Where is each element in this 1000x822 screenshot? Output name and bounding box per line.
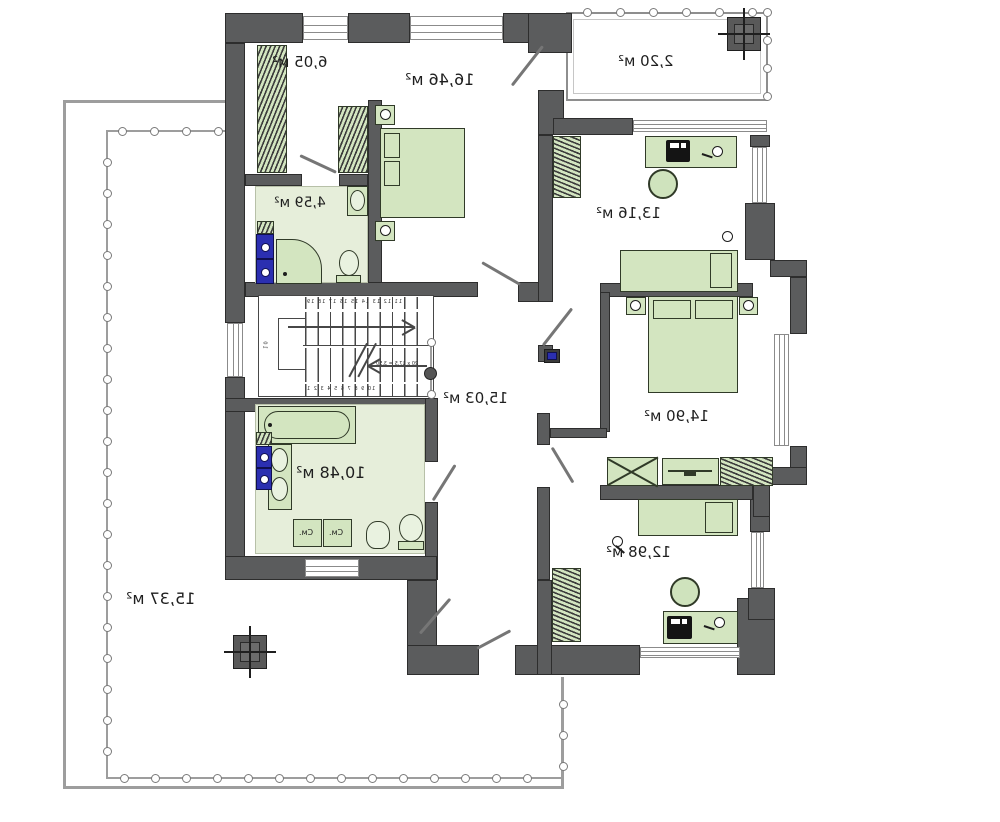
wall-segment [770, 260, 807, 277]
railing-post [368, 774, 377, 783]
bathtub-faucet [268, 423, 272, 427]
room-area-label: 6,05 м² [272, 55, 328, 70]
laundry-box-label: См. [299, 529, 313, 537]
room-area-label: 4,59 м² [274, 196, 326, 210]
stair-numbers-bottom: 10 9 8 7 6 5 4 3 2 1 [306, 387, 375, 392]
wall-segment [537, 413, 550, 445]
chair [670, 577, 700, 607]
floor-plan: 15,37 м² 2,20 м² [0, 0, 1000, 822]
door-leaf [481, 261, 521, 286]
railing-post [763, 92, 772, 101]
balcony-area-label: 2,20 м² [618, 54, 674, 69]
sink-basin [350, 190, 365, 211]
room-area-label: 16,46 м² [405, 72, 474, 88]
railing-post [103, 437, 112, 446]
wardrobe-unit [338, 106, 368, 173]
laundry-box-label: См. [329, 529, 343, 537]
radiator [553, 136, 581, 198]
railing-post [275, 774, 284, 783]
window [227, 323, 243, 377]
washing-machine [256, 446, 272, 468]
railing-post [103, 654, 112, 663]
railing-post [583, 8, 592, 17]
toilet-bowl [399, 514, 423, 542]
stair-arrow-up [288, 326, 413, 328]
terrace-edge [63, 100, 66, 788]
railing-post [103, 530, 112, 539]
railing-post [559, 700, 568, 709]
wall-segment [748, 588, 775, 620]
wall-segment [348, 13, 410, 43]
wall-segment [600, 292, 610, 432]
computer-icon [666, 140, 690, 162]
railing-post [182, 127, 191, 136]
bidet [366, 521, 390, 549]
room-area-label: 12,98 м² [606, 545, 671, 560]
railing-post [337, 774, 346, 783]
railing-post [103, 282, 112, 291]
toilet-bowl [339, 250, 359, 276]
railing-post [103, 561, 112, 570]
wall-segment [770, 467, 807, 485]
shelf-unit [257, 221, 274, 234]
column-axis-icon [249, 626, 251, 678]
door-leaf [299, 154, 337, 174]
bathtub-basin [264, 411, 350, 439]
computer-icon [667, 616, 692, 639]
wall-segment [550, 428, 607, 438]
window [640, 647, 740, 658]
door-leaf [542, 308, 573, 347]
wall-segment [528, 13, 572, 53]
lamp-icon [380, 225, 391, 236]
railing-post [103, 747, 112, 756]
wall-segment [753, 483, 770, 517]
radiator [552, 568, 581, 642]
railing-post [715, 8, 724, 17]
railing-post [103, 251, 112, 260]
railing-post [120, 774, 129, 783]
railing-post [214, 127, 223, 136]
lamp-icon [380, 109, 391, 120]
railing-post [649, 8, 658, 17]
railing-post [430, 774, 439, 783]
window [410, 16, 503, 40]
shelf-unit [256, 432, 272, 445]
wall-segment [339, 174, 368, 186]
railing-post [103, 189, 112, 198]
wall-segment [538, 135, 553, 302]
dressing-table-seat [684, 472, 696, 476]
electrical-box-face [547, 352, 557, 360]
terrace-edge [63, 100, 225, 103]
window-balcony [633, 120, 767, 132]
door-leaf [551, 447, 575, 484]
railing-post [150, 127, 159, 136]
column-axis-icon [743, 8, 745, 60]
wall-segment [790, 277, 807, 334]
railing-post [103, 375, 112, 384]
railing-post [427, 338, 436, 347]
wall-segment [537, 580, 552, 675]
railing-post [103, 499, 112, 508]
stair-numbers-top: 11 12 13 14 15 16 17 18 19 [306, 300, 402, 305]
stair-side-note: 10 [262, 340, 267, 348]
room-area-label: 15,03 м² [443, 391, 508, 406]
railing-post [763, 8, 772, 17]
wall-segment [225, 43, 245, 323]
terrace-area-label: 15,37 м² [126, 591, 195, 607]
lamp-icon [743, 300, 754, 311]
window [751, 532, 764, 588]
railing-post [748, 8, 757, 17]
sink-basin [271, 477, 288, 501]
lamp-icon [714, 617, 725, 628]
railing-post [103, 313, 112, 322]
railing-post [151, 774, 160, 783]
wall-segment [537, 487, 550, 580]
railing-post [103, 716, 112, 725]
railing-post [103, 406, 112, 415]
railing-post [244, 774, 253, 783]
window [303, 16, 348, 40]
railing-post [182, 774, 191, 783]
toilet-tank [398, 541, 424, 550]
sink-basin [271, 448, 288, 472]
railing-post [103, 344, 112, 353]
wall-segment [600, 485, 753, 500]
wall-segment [407, 580, 437, 647]
terrace-edge [63, 786, 564, 789]
wall-segment [503, 13, 530, 43]
door-leaf [432, 464, 457, 501]
railing-post [461, 774, 470, 783]
lamp-icon [712, 146, 723, 157]
railing-post [399, 774, 408, 783]
dryer [256, 259, 274, 284]
radiator [720, 457, 773, 486]
railing-post [103, 685, 112, 694]
wall-segment [745, 203, 775, 260]
wall-segment [515, 645, 640, 675]
railing-post [523, 774, 532, 783]
railing-post [103, 220, 112, 229]
window-bay [774, 334, 789, 446]
stair-newel-post [424, 367, 437, 380]
wall-segment [790, 446, 807, 469]
wall-segment [407, 645, 479, 675]
room-area-label: 10,48 м² [296, 465, 365, 481]
railing-post [103, 592, 112, 601]
wall-segment [553, 118, 633, 135]
pillow [384, 133, 400, 158]
lamp-icon [630, 300, 641, 311]
pillow [710, 253, 732, 288]
railing-post [213, 774, 222, 783]
railing-post [682, 8, 691, 17]
shower-drain [283, 272, 287, 276]
railing-post [427, 390, 436, 399]
wall-segment [225, 13, 303, 43]
railing-post [103, 468, 112, 477]
stair-annotation: 20 х 17,5 = 3,50 [376, 362, 418, 367]
door-leaf [476, 629, 511, 649]
railing-post [559, 731, 568, 740]
railing-post [118, 127, 127, 136]
pillow [695, 300, 733, 319]
wall-segment [750, 135, 770, 147]
pillow [705, 502, 733, 533]
chair [648, 169, 678, 199]
railing-post [103, 623, 112, 632]
desk [645, 136, 737, 168]
dryer [256, 468, 272, 490]
pillow [653, 300, 691, 319]
railing-post [559, 762, 568, 771]
railing-post [763, 36, 772, 45]
railing-post [103, 158, 112, 167]
pillow [384, 161, 400, 186]
washing-machine [256, 234, 274, 259]
wall-segment [245, 174, 302, 186]
window [305, 559, 359, 577]
railing-post [306, 774, 315, 783]
room-area-label: 13,16 м² [596, 206, 661, 221]
railing-post [616, 8, 625, 17]
toilet-tank [336, 275, 361, 283]
railing-post [763, 64, 772, 73]
window [752, 147, 767, 203]
wall-segment [425, 398, 438, 462]
lamp-icon [722, 231, 733, 242]
room-area-label: 14,90 м² [644, 409, 709, 424]
railing-post [492, 774, 501, 783]
